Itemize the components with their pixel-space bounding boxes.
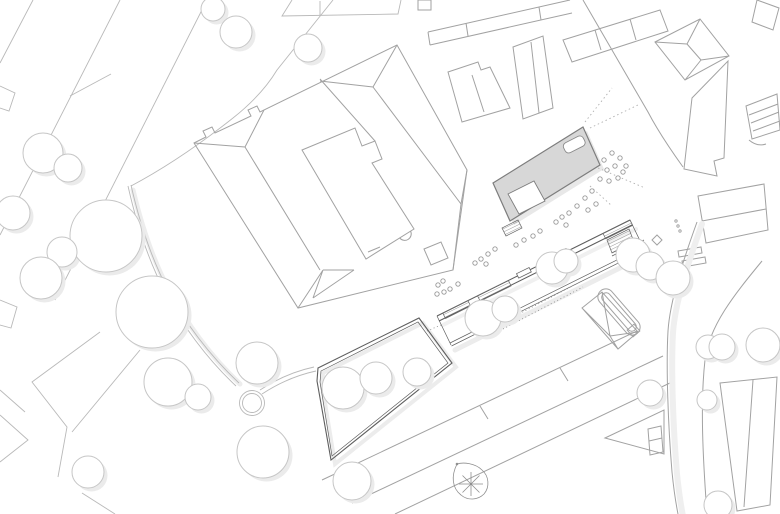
courtyard-arch (400, 231, 412, 240)
planting-dot (538, 229, 542, 233)
planting-dot (602, 158, 606, 162)
small-block (418, 0, 431, 10)
plaza-diamond (652, 235, 662, 245)
tree (294, 34, 322, 62)
row-line (352, 356, 663, 503)
block-tall (513, 36, 553, 119)
edge-parcel (0, 86, 15, 111)
tree (746, 328, 780, 362)
planting-dot (564, 223, 568, 227)
tree (322, 367, 364, 409)
corner-block (752, 0, 779, 30)
parcel-lines-southwest (0, 415, 28, 462)
planting-dot (618, 156, 622, 160)
hip-roof-building (582, 292, 638, 349)
planting-dot (442, 290, 446, 294)
inner-courtyard (302, 128, 414, 259)
parcel-lines-southwest (0, 390, 25, 412)
planting-dot (456, 282, 460, 286)
parcel-lines-southwest (82, 493, 115, 514)
strip-building (428, 0, 572, 45)
planting-dot (554, 220, 558, 224)
planting-dot (493, 247, 497, 251)
parcel-lines-southwest (72, 350, 140, 432)
tree (360, 362, 392, 394)
wedge-structure (605, 410, 664, 455)
planting-dot (484, 262, 488, 266)
site-plan-canvas (0, 0, 780, 514)
courtyard-building (194, 45, 467, 308)
parcel-lines-southwest (32, 332, 100, 477)
tree (236, 342, 278, 384)
planting-dot (435, 292, 439, 296)
tiny-mark (675, 220, 677, 222)
edge-parcel (0, 300, 17, 328)
southeast-block (720, 377, 777, 511)
planting-dot (567, 211, 571, 215)
radial-spokes (459, 472, 483, 496)
tree (237, 426, 289, 478)
striped-building (746, 94, 780, 139)
highlighted-building (493, 127, 604, 236)
street-diagonal (583, 0, 683, 167)
tree (704, 491, 732, 514)
tree (709, 334, 735, 360)
tip-dot (456, 463, 459, 466)
turning-loop-outer (240, 391, 265, 416)
tree (637, 380, 663, 406)
planting-dot (522, 238, 526, 242)
dashed-ray (590, 104, 640, 128)
planting-dot (607, 179, 611, 183)
tree (333, 462, 371, 500)
planting-dot (613, 164, 617, 168)
courtyard-annex (368, 242, 448, 265)
planting-dot (586, 208, 590, 212)
hip-roof-outline (582, 292, 638, 349)
planting-dot (610, 151, 614, 155)
planting-dot (560, 215, 564, 219)
planting-dot (473, 261, 477, 265)
courtyard-outline (194, 45, 467, 308)
planting-dot (479, 257, 483, 261)
top-center-building (282, 0, 401, 16)
planting-dot (448, 287, 452, 291)
tree (72, 456, 104, 488)
tree (220, 16, 252, 48)
dashed-ray (585, 88, 612, 122)
row-line (395, 382, 672, 514)
block-pentagon (448, 62, 510, 122)
planting-dot (575, 204, 579, 208)
east-buildings (652, 61, 780, 267)
planting-dot (605, 168, 609, 172)
tree (70, 200, 142, 272)
tree (0, 196, 30, 230)
turning-loop-inner (243, 394, 262, 413)
east-parallelogram (684, 61, 728, 176)
tiny-mark (677, 225, 679, 227)
planting-dot (598, 177, 602, 181)
tree (54, 154, 82, 182)
tree (201, 0, 225, 21)
block-band (563, 10, 668, 62)
entry-stair (502, 220, 522, 236)
tree (656, 261, 690, 295)
street-line (0, 0, 33, 63)
roof-ridges (194, 45, 467, 308)
row-line (322, 331, 637, 480)
planting-dot (583, 196, 587, 200)
planting-dot (590, 189, 594, 193)
planting-dot (531, 234, 535, 238)
tree (116, 276, 188, 348)
north-arrow (453, 463, 488, 499)
east-rectangle-building (698, 184, 768, 243)
tree (185, 384, 211, 410)
tree (697, 390, 717, 410)
planting-dot (624, 164, 628, 168)
planting-dot (486, 252, 490, 256)
site-plan (0, 0, 780, 514)
tree (492, 296, 518, 322)
teardrop-outline (453, 463, 488, 499)
planting-dot (621, 170, 625, 174)
tiny-mark (679, 230, 681, 232)
planting-dot (616, 176, 620, 180)
tree (20, 257, 62, 299)
tree (554, 249, 578, 273)
planting-dot (441, 279, 445, 283)
planting-dot (594, 202, 598, 206)
planting-dot (436, 283, 440, 287)
tree (403, 358, 431, 386)
trees-group (0, 0, 780, 514)
planting-dot (514, 243, 518, 247)
row-rung (480, 368, 568, 419)
striped-building-apron (749, 140, 766, 145)
